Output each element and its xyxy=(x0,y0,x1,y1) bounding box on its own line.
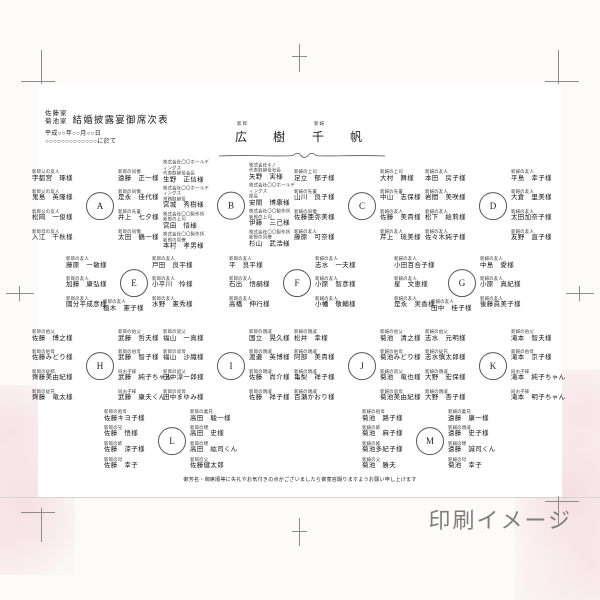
guest-entry: 新郎の父佐藤健太郎 xyxy=(190,457,240,471)
guest-name: 中島 愛様 xyxy=(480,262,530,270)
guest-entry: 新婦の友人小原 智彦様 xyxy=(315,276,365,290)
guest-name: 太田 鶴一様 xyxy=(118,234,168,242)
guest-name: 佐藤 悟様 xyxy=(104,431,154,439)
table-group-F: 新郎の友人平 良平様新郎の友人石出 悟嗣様新郎の友人高橋 伸行様F新婦の友人志水… xyxy=(229,256,365,310)
guest-name: 遠藤 康一様 xyxy=(448,415,498,423)
guest-entry: 新婦の伯母滝本 京子様 xyxy=(511,349,561,363)
guest-name: 遠藤 正一様 xyxy=(118,175,168,183)
table-circle-L: L xyxy=(158,427,186,455)
table-group-L: 新郎の祖母佐藤キヨ子様新郎の兄佐藤 悟様新郎の姉佐藤 涼子様新郎の母佐藤 幸子L… xyxy=(104,409,240,473)
guest-entry: 新郎の義兄高田 駿一様 xyxy=(190,409,240,423)
guest-entry: 新婦の上司大村 舞様 xyxy=(380,169,430,183)
guest-entry: 株式会社〇〇製作所新郎の上司宮田 悟様 xyxy=(163,212,213,231)
guest-entry: 新婦の母菊池 幸子 xyxy=(448,457,498,471)
print-image-watermark: 印刷イメージ xyxy=(428,503,572,535)
guest-name: 矢野 実様 xyxy=(249,173,299,181)
crop-mark-right-center xyxy=(579,286,580,301)
guest-name: 友野 直子様 xyxy=(511,234,561,242)
guest-entry: 新郎の伯父佐藤 博之様 xyxy=(32,329,82,343)
guest-name: 宮城 秀樹様 xyxy=(163,202,213,210)
guest-entry: 新婦の姉菊池 麻子様 xyxy=(362,425,412,439)
guest-entry: 新郎父の友人宇都宮 琢様 xyxy=(32,169,82,183)
table-circle-M: M xyxy=(416,427,444,455)
guest-name: 佐藤亜弥美様 xyxy=(294,215,344,223)
table-group-A: 新郎父の友人宇都宮 琢様新郎父の友人鬼島 英隆様新郎父の友人松岡 一俊様新郎母の… xyxy=(32,169,168,243)
bride-family-name: 菊池家 xyxy=(45,118,68,126)
table-circle-H: H xyxy=(86,352,114,380)
guest-name: 滝本 純子ちゃん xyxy=(511,375,561,383)
table-group-M: 新婦の祖母菊池 路子様新婦の姉菊池 麻子様新婦の姉菊池多紀子様新婦の父菊池 勝夫… xyxy=(362,409,498,473)
guest-entry: 同お子様武藤 康夫くん xyxy=(118,389,168,403)
guest-name: 宮田 悟様 xyxy=(163,223,213,231)
guest-column: 新郎の同僚遠藤 正一様新郎の同僚是永 佳代様新郎の先輩井上 七夕様新郎の同僚太田… xyxy=(118,169,168,243)
print-preview-canvas: { "colors": { "watermark_gray": "#7E7E7E… xyxy=(0,0,600,600)
guest-entry: 新郎の友人高橋 伸行様 xyxy=(229,296,279,310)
guest-name: 本村 孝男様 xyxy=(163,243,213,251)
guest-entry: 新郎の親戚渡邉 英博様 xyxy=(249,349,299,363)
guest-name: 菊池 清之様 xyxy=(380,335,430,343)
guest-name: 藤原 一敏様 xyxy=(66,262,116,270)
guest-entry: 株式会社キノ代表取締役社長矢野 実様 xyxy=(249,162,299,181)
crop-mark-bottom-left xyxy=(21,512,55,513)
guest-name: 大倉 里美様 xyxy=(511,195,561,203)
guest-column: 新婦の上司大村 舞様新婦の先輩中山 志保様新婦の友人佐藤 美貴様新婦の友人芹上 … xyxy=(380,169,430,243)
guest-name: 佐藤 美貴様 xyxy=(380,215,430,223)
guest-entry: 新郎の同僚是永 佳代様 xyxy=(118,189,168,203)
guest-name: 鬼島 英隆様 xyxy=(32,195,82,203)
guest-entry: 新婦の親戚阿部 美貴様 xyxy=(294,349,344,363)
guest-entry: 新婦の同僚佐藤亜弥美様 xyxy=(294,209,344,223)
guest-name: 藤原 可奈様 xyxy=(294,234,344,242)
crop-mark-top-right xyxy=(558,50,559,84)
guest-column: 新婦の伯父滝本 智夫様新婦の伯母滝本 京子様同お子様滝本 純子ちゃん同お子様滝本… xyxy=(511,329,561,403)
guest-name: 井上 七夕様 xyxy=(118,215,168,223)
guest-name: 滝本 智夫様 xyxy=(511,335,561,343)
guest-name: 松下 絵莉様 xyxy=(425,215,475,223)
guest-relation: 株式会社〇〇ホールディングス xyxy=(249,183,299,194)
guest-column: 株式会社キノ代表取締役社長矢野 実様株式会社〇〇ホールディングス部長安間 博康様… xyxy=(249,162,299,249)
groom-name-block: 新郎 広 樹 xyxy=(235,121,292,145)
guest-entry: 新婦の姉菊池多紀子様 xyxy=(362,441,412,455)
guest-entry: 新郎の従兄齊藤 竜太様 xyxy=(32,389,82,403)
guest-entry: 同お子様滝本 純子ちゃん xyxy=(511,369,561,383)
guest-name: 齊藤 竜太様 xyxy=(32,394,82,402)
guest-name: 滝本 明子ちゃん xyxy=(511,394,561,402)
guest-name: 杉山 武浩様 xyxy=(249,240,299,248)
guest-name: 阿部 美貴様 xyxy=(294,355,344,363)
guest-entry: 新婦の友人小幡 敬輔様 xyxy=(315,296,365,310)
guest-name: 遠藤 誠司くん xyxy=(448,447,498,455)
guest-name: 戸田 良平様 xyxy=(152,262,202,270)
guest-name: 菊池美由紀様 xyxy=(380,394,430,402)
document-title: 結婚披露宴御席次表 xyxy=(73,117,169,127)
guest-column: 新郎の祖母佐藤キヨ子様新郎の兄佐藤 悟様新郎の姉佐藤 涼子様新郎の母佐藤 幸子 xyxy=(104,409,154,473)
guest-entry: 新婦の先輩山川 良子様 xyxy=(294,189,344,203)
guest-name: 佐藤 尚介様 xyxy=(249,375,299,383)
guest-name: 高田 紘司くん xyxy=(190,447,240,455)
guest-entry: 新郎の甥高田 紘司くん xyxy=(190,441,240,455)
table-group-K: 新婦の伯父志水 元明様新婦の従兄志水慎太郎様新婦の親戚大野 宏保様新婦の親戚大野… xyxy=(425,329,561,403)
guest-name: 志水 元明様 xyxy=(425,335,475,343)
crop-mark-top-left xyxy=(21,81,55,82)
guest-entry: 新婦の甥遠藤 誠司くん xyxy=(448,441,498,455)
guest-column: 新婦の友人志水 一夫様新婦の友人小原 智彦様新婦の友人小幡 敬輔様 xyxy=(315,256,365,310)
guest-name: 山川 良子様 xyxy=(294,195,344,203)
guest-name: 太田加奈子様 xyxy=(511,215,561,223)
guest-name: 菊池 路子様 xyxy=(362,415,412,423)
guest-name: 佐藤 幸子 xyxy=(104,462,154,470)
guest-name: 大野 宏保様 xyxy=(425,375,475,383)
guest-entry: 新婦の父菊池 勝夫 xyxy=(362,457,412,471)
guest-name: 小原 真紀様 xyxy=(480,282,530,290)
guest-entry: 株式会社〇〇製作所新郎の同僚本村 孝男様 xyxy=(163,232,213,251)
guest-entry: 新郎の伯母武藤 智子様 xyxy=(118,349,168,363)
guest-name: 佐藤 博之様 xyxy=(32,335,82,343)
guest-column: 株式会社〇〇ホールディングス代表取締役会長生野 正信様株式会社〇〇ホールディング… xyxy=(163,160,213,253)
guest-name: 小幡 敬輔様 xyxy=(315,301,365,309)
guest-entry: 新婦の叔母菊池美由紀様 xyxy=(380,389,430,403)
guest-name: 菊池みどり様 xyxy=(380,355,430,363)
guest-name: 星 文恵様 xyxy=(394,282,444,290)
guest-name: 平島 幸子様 xyxy=(511,175,561,183)
guest-entry: 新婦の友人松下 絵莉様 xyxy=(425,209,475,223)
guest-column: 新郎の親戚国立 晃久様新郎の親戚渡邉 英博様新郎の親戚佐藤 尚介様新郎の親戚佐藤… xyxy=(249,329,299,403)
guest-name: 加藤 康弘様 xyxy=(66,282,116,290)
event-date: 平成○○年○○月○○日 xyxy=(45,131,169,137)
table-circle-C: C xyxy=(348,192,376,220)
crop-mark-bottom-center xyxy=(299,518,300,546)
guest-name: 安間 博康様 xyxy=(249,199,299,207)
guest-entry: 新婦の友人星 文恵様 xyxy=(394,276,444,290)
guest-entry: 新郎の甥高田 史様 xyxy=(190,425,240,439)
guest-name: 佐藤健太郎 xyxy=(190,462,240,470)
guest-entry: 新郎の兄佐藤 悟様 xyxy=(104,425,154,439)
guest-entry: 新郎の友人小平川 怜様 xyxy=(152,276,202,290)
guest-entry: 新婦の親戚大野 杏子様 xyxy=(425,389,475,403)
guest-column: 新婦の友人平島 幸子様新婦の友人大倉 里美様新婦の友人太田加奈子様新婦の友人友野… xyxy=(511,169,561,243)
document-header: 佐藤家 菊池家 結婚披露宴御席次表 平成○○年○○月○○日 ○○○○○○○○○○… xyxy=(45,110,169,145)
crop-mark-bottom-right xyxy=(545,501,579,502)
crop-mark-top-center xyxy=(299,44,300,72)
guest-column: 新郎の伯父佐藤 博之様新郎の伯母佐藤みどり様新郎の従姉齊藤美由紀様新郎の従兄齊藤… xyxy=(32,329,82,403)
crop-mark-bottom-left xyxy=(41,508,42,542)
guest-name: 佐藤 祥子様 xyxy=(249,394,299,402)
table-circle-K: K xyxy=(479,352,507,380)
table-group-J: 新婦の親戚松井 幸様新婦の親戚阿部 美貴様新婦の親戚亀梨 祥子様新婦の親戚百瀬か… xyxy=(294,329,430,403)
guest-name: 石出 悟嗣様 xyxy=(229,282,279,290)
guest-name: 大野 杏子様 xyxy=(425,394,475,402)
bride-name: 千 帆 xyxy=(312,128,369,145)
guest-entry: 新郎の先輩井上 七夕様 xyxy=(118,209,168,223)
guest-column: 新婦の伯父志水 元明様新婦の従兄志水慎太郎様新婦の親戚大野 宏保様新婦の親戚大野… xyxy=(425,329,475,403)
groom-name: 広 樹 xyxy=(235,128,292,145)
guest-column: 新婦の友人本田 房子様新婦の友人岩間 美咲様新婦の友人松下 絵莉様新婦の友人佐々… xyxy=(425,169,475,243)
guest-name: 田中淳一郎様 xyxy=(163,375,213,383)
guest-name: 武藤 智子様 xyxy=(118,355,168,363)
guest-entry: 同お子様滝本 明子ちゃん xyxy=(511,389,561,403)
crop-mark-top-right xyxy=(545,81,579,82)
guest-entry: 新郎の友人平 良平様 xyxy=(229,256,279,270)
table-group-H: 新郎の伯父佐藤 博之様新郎の伯母佐藤みどり様新郎の従姉齊藤美由紀様新郎の従兄齊藤… xyxy=(32,329,168,403)
guest-column: 新郎父の友人宇都宮 琢様新郎父の友人鬼島 英隆様新郎父の友人松岡 一俊様新郎母の… xyxy=(32,169,82,243)
guest-entry: 新婦の友人大倉 里美様 xyxy=(511,189,561,203)
guest-name: 菊池 竜也様 xyxy=(380,375,430,383)
guest-entry: 新婦の友人藤原 可奈様 xyxy=(294,229,344,243)
guest-entry: 新郎の姉佐藤 涼子様 xyxy=(104,441,154,455)
guest-entry: 新郎母の友人入江 千秋様 xyxy=(32,229,82,243)
table-circle-D: D xyxy=(479,192,507,220)
guest-entry: 新婦の友人本田 房子様 xyxy=(425,169,475,183)
guest-name: 福山 一真様 xyxy=(163,335,213,343)
guest-name: 小田百合子様 xyxy=(394,262,444,270)
table-E-bottom-guest: 新郎の友人植木 憲子様 xyxy=(103,299,165,313)
guest-entry: 新婦の義兄遠藤 康一様 xyxy=(448,409,498,423)
guest-entry: 新婦の友人太田加奈子様 xyxy=(511,209,561,223)
guest-entry: 新郎の同僚太田 鶴一様 xyxy=(118,229,168,243)
bride-label: 新婦 xyxy=(314,121,369,127)
guest-entry: 新婦の友人友野 直子様 xyxy=(511,229,561,243)
guest-name: 菊池 幸子 xyxy=(448,462,498,470)
guest-name: 渡邉 英博様 xyxy=(249,355,299,363)
guest-name: 岩間 美咲様 xyxy=(425,195,475,203)
guest-entry: 新婦の親戚亀梨 祥子様 xyxy=(294,369,344,383)
guest-column: 新婦の祖母菊池 路子様新婦の姉菊池 麻子様新婦の姉菊池多紀子様新婦の父菊池 勝夫 xyxy=(362,409,412,473)
guest-name: 福山 沙織様 xyxy=(163,355,213,363)
guest-entry: 新婦の親戚大野 宏保様 xyxy=(425,369,475,383)
guest-entry: 新婦の先輩中山 志保様 xyxy=(380,189,430,203)
guest-name: 国立 晃久様 xyxy=(249,335,299,343)
guest-entry: 新郎の叔母田中まゆみ様 xyxy=(163,389,213,403)
guest-name: 芹上 琉美様 xyxy=(380,234,430,242)
guest-entry: 新婦の親戚遠藤 史子様 xyxy=(448,425,498,439)
guest-entry: 新郎の従姉齊藤美由紀様 xyxy=(32,369,82,383)
guest-column: 新婦の義兄遠藤 康一様新婦の親戚遠藤 史子様新婦の甥遠藤 誠司くん新婦の母菊池 … xyxy=(448,409,498,473)
guest-entry: 新郎の友人藤原 一敏様 xyxy=(66,256,116,270)
guest-entry: 新郎の友人加藤 康弘様 xyxy=(66,276,116,290)
guest-name: 佐藤みどり様 xyxy=(32,355,82,363)
guest-name: 大村 舞様 xyxy=(380,175,430,183)
page-bottom-edge xyxy=(0,497,600,498)
guest-name: 菊池 麻子様 xyxy=(362,431,412,439)
guest-entry: 新婦の伯母菊池みどり様 xyxy=(380,349,430,363)
guest-name: 武藤 哲夫様 xyxy=(118,335,168,343)
guest-name: 是永 佳代様 xyxy=(118,195,168,203)
guest-entry: 新郎の叔母福山 沙織様 xyxy=(163,349,213,363)
guest-entry: 新郎の叔父福山 一真様 xyxy=(163,329,213,343)
guest-name: 武藤 康夫くん xyxy=(118,394,168,402)
crop-mark-right-center xyxy=(566,293,594,294)
guest-entry: 新郎の母佐藤 幸子 xyxy=(104,457,154,471)
guest-entry: 新婦の祖母菊池 路子様 xyxy=(362,409,412,423)
guest-name: 佐藤 涼子様 xyxy=(104,447,154,455)
guest-name: 中山 志保様 xyxy=(380,195,430,203)
guest-entry: 株式会社〇〇製作所新郎の上司伊藤 三己様 xyxy=(249,209,299,228)
guest-entry: 新郎の伯父武藤 哲夫様 xyxy=(118,329,168,343)
crop-mark-left-center xyxy=(19,286,20,301)
table-circle-F: F xyxy=(283,269,311,297)
guest-name: 志水 一夫様 xyxy=(315,262,365,270)
table-circle-I: I xyxy=(217,352,245,380)
guest-entry: 新婦の友人小原 真紀様 xyxy=(480,276,530,290)
table-group-B: 株式会社〇〇ホールディングス代表取締役会長生野 正信様株式会社〇〇ホールディング… xyxy=(163,160,299,253)
guest-column: 新婦の伯父菊池 清之様新婦の伯母菊池みどり様新婦の叔父菊池 竜也様新婦の叔母菊池… xyxy=(380,329,430,403)
guest-entry: 新婦の親戚百瀬かおり様 xyxy=(294,389,344,403)
guest-name: 遠藤 史子様 xyxy=(448,431,498,439)
footnote: 御芳名・御席順等に失礼やお気付きの点がございましたら御寛容賜りますようお願い申し… xyxy=(183,476,416,483)
guest-entry: 株式会社〇〇ホールディングス常務取締役宮城 秀樹様 xyxy=(163,186,213,211)
guest-column: 新郎の叔父福山 一真様新郎の叔母福山 沙織様新郎の叔父田中淳一郎様新郎の叔母田中… xyxy=(163,329,213,403)
guest-entry: 新婦の親戚松井 幸様 xyxy=(294,329,344,343)
guest-name: 伊藤 三己様 xyxy=(249,220,299,228)
table-circle-J: J xyxy=(348,352,376,380)
guest-name: 田中まゆみ様 xyxy=(163,394,213,402)
guest-name: 小原 智彦様 xyxy=(315,282,365,290)
guest-name: 宇都宮 琢様 xyxy=(32,175,82,183)
table-circle-B: B xyxy=(217,192,245,220)
guest-name: 生野 正信様 xyxy=(163,176,213,184)
guest-name: 高田 駿一様 xyxy=(190,415,240,423)
guest-column: 新婦の親戚松井 幸様新婦の親戚阿部 美貴様新婦の親戚亀梨 祥子様新婦の親戚百瀬か… xyxy=(294,329,344,403)
guest-entry: 新婦の従兄志水慎太郎様 xyxy=(425,349,475,363)
guest-entry: 株式会社〇〇ホールディングス代表取締役会長生野 正信様 xyxy=(163,160,213,185)
event-venue: ○○○○○○○○○○○○○に於て xyxy=(45,139,169,145)
guest-name: 武藤 純子ちゃん xyxy=(118,375,168,383)
guest-name: 松岡 一俊様 xyxy=(32,215,82,223)
table-group-D: 新婦の友人本田 房子様新婦の友人岩間 美咲様新婦の友人松下 絵莉様新婦の友人佐々… xyxy=(425,169,561,243)
guest-entry: 新婦の友人志水 一夫様 xyxy=(315,256,365,270)
guest-entry: 新郎父の友人鬼島 英隆様 xyxy=(32,189,82,203)
guest-entry: 新婦の友人岩間 美咲様 xyxy=(425,189,475,203)
crop-mark-top-left xyxy=(41,50,42,84)
guest-entry: 新郎の親戚佐藤 尚介様 xyxy=(249,369,299,383)
guest-name: 本田 房子様 xyxy=(425,175,475,183)
guest-name: 百瀬かおり様 xyxy=(294,394,344,402)
guest-name: 亀梨 祥子様 xyxy=(294,375,344,383)
guest-column: 新郎の義兄高田 駿一様新郎の甥高田 史様新郎の甥高田 紘司くん新郎の父佐藤健太郎 xyxy=(190,409,240,473)
guest-entry: 新婦の友人芹上 琉美様 xyxy=(380,229,430,243)
guest-name: 小平川 怜様 xyxy=(152,282,202,290)
guest-entry: 新婦の伯父菊池 清之様 xyxy=(380,329,430,343)
guest-relation: 株式会社〇〇ホールディングス xyxy=(163,160,213,171)
groom-label: 新郎 xyxy=(237,121,292,127)
guest-entry: 新婦の上司足立 郁子様 xyxy=(294,169,344,183)
guest-entry: 株式会社〇〇ホールディングス部長安間 博康様 xyxy=(249,183,299,208)
guest-name: 佐々木純子様 xyxy=(425,234,475,242)
guest-column: 新婦の上司足立 郁子様新婦の先輩山川 良子様新婦の同僚佐藤亜弥美様新婦の友人藤原… xyxy=(294,169,344,243)
crop-mark-bottom-center xyxy=(292,531,307,532)
guest-column: 新郎の伯父武藤 哲夫様新郎の伯母武藤 智子様同お子様武藤 純子ちゃん同お子様武藤… xyxy=(118,329,168,403)
guest-entry: 新郎の祖母佐藤キヨ子様 xyxy=(104,409,154,423)
family-names: 佐藤家 菊池家 xyxy=(45,110,68,127)
guest-entry: 新婦の友人佐藤 美貴様 xyxy=(380,209,430,223)
guest-name: 齊藤美由紀様 xyxy=(32,375,82,383)
table-circle-E: E xyxy=(120,269,148,297)
guest-entry: 新郎の親戚国立 晃久様 xyxy=(249,329,299,343)
guest-column: 新郎の友人平 良平様新郎の友人石出 悟嗣様新郎の友人高橋 伸行様 xyxy=(229,256,279,310)
guest-name: 高橋 伸行様 xyxy=(229,301,279,309)
guest-entry: 新婦の友人佐々木純子様 xyxy=(425,229,475,243)
guest-entry: 新郎の親戚佐藤 祥子様 xyxy=(249,389,299,403)
guest-entry: 新郎の叔父田中淳一郎様 xyxy=(163,369,213,383)
guest-entry: 新郎の友人戸田 良平様 xyxy=(152,256,202,270)
guest-entry: 新婦の友人小田百合子様 xyxy=(394,256,444,270)
guest-name: 佐藤キヨ子様 xyxy=(104,415,154,423)
table-G-bottom-guest: 新婦の友人田中 桂子様 xyxy=(431,299,493,313)
crop-mark-top-center xyxy=(292,56,307,57)
guest-name: 滝本 京子様 xyxy=(511,355,561,363)
guest-entry: 新婦の伯父滝本 智夫様 xyxy=(511,329,561,343)
table-circle-A: A xyxy=(86,192,114,220)
guest-entry: 新婦の伯父志水 元明様 xyxy=(425,329,475,343)
guest-name: 高田 史様 xyxy=(190,431,240,439)
guest-name: 植木 憲子様 xyxy=(103,305,165,313)
crop-mark-left-center xyxy=(6,293,34,294)
guest-entry: 新郎父の友人松岡 一俊様 xyxy=(32,209,82,223)
guest-entry: 新郎の友人石出 悟嗣様 xyxy=(229,276,279,290)
guest-name: 菊池多紀子様 xyxy=(362,447,412,455)
table-circle-G: G xyxy=(448,269,476,297)
guest-name: 菊池 勝夫 xyxy=(362,462,412,470)
guest-name: 平 良平様 xyxy=(229,262,279,270)
guest-entry: 新婦の友人中島 愛様 xyxy=(480,256,530,270)
bride-name-block: 新婦 千 帆 xyxy=(312,121,369,145)
guest-entry: 新婦の叔父菊池 竜也様 xyxy=(380,369,430,383)
table-group-C: 新婦の上司足立 郁子様新婦の先輩山川 良子様新婦の同僚佐藤亜弥美様新婦の友人藤原… xyxy=(294,169,430,243)
guest-entry: 同お子様武藤 純子ちゃん xyxy=(118,369,168,383)
guest-name: 松井 幸様 xyxy=(294,335,344,343)
guest-name: 田中 桂子様 xyxy=(431,305,493,313)
guest-name: 志水慎太郎様 xyxy=(425,355,475,363)
guest-name: 入江 千秋様 xyxy=(32,234,82,242)
table-group-I: 新郎の叔父福山 一真様新郎の叔母福山 沙織様新郎の叔父田中淳一郎様新郎の叔母田中… xyxy=(163,329,299,403)
guest-entry: 新郎の同僚遠藤 正一様 xyxy=(118,169,168,183)
guest-entry: 新婦の友人平島 幸子様 xyxy=(511,169,561,183)
couple-names: 新郎 広 樹 新婦 千 帆 xyxy=(235,121,369,145)
guest-name: 足立 郁子様 xyxy=(294,175,344,183)
guest-entry: 新郎の伯母佐藤みどり様 xyxy=(32,349,82,363)
guest-relation: 株式会社〇〇ホールディングス xyxy=(163,186,213,197)
guest-entry: 株式会社〇〇製作所新郎の同僚杉山 武浩様 xyxy=(249,229,299,248)
